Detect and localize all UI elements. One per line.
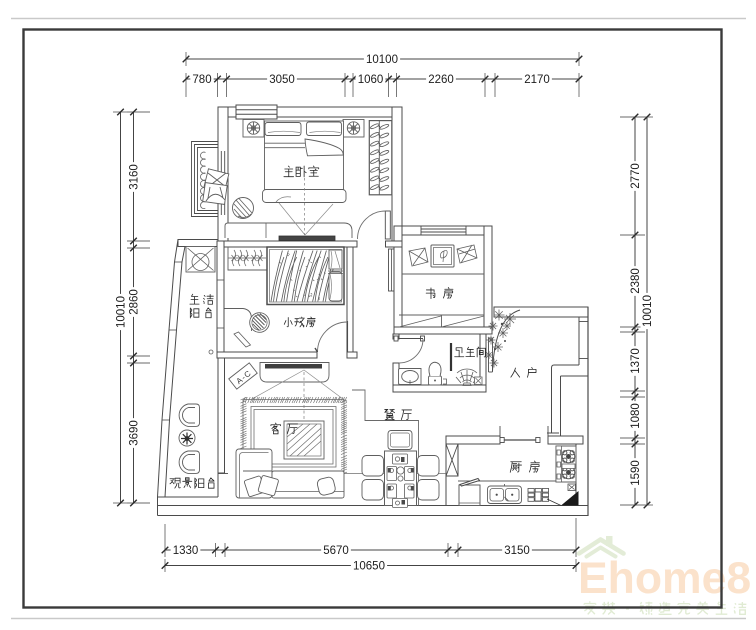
svg-text:3050: 3050	[269, 74, 295, 86]
svg-text:1080: 1080	[630, 403, 642, 429]
svg-text:1370: 1370	[630, 348, 642, 374]
svg-text:3690: 3690	[129, 420, 141, 446]
svg-text:780: 780	[192, 74, 211, 86]
svg-text:1330: 1330	[173, 545, 199, 557]
svg-text:5670: 5670	[323, 545, 349, 557]
svg-text:1590: 1590	[630, 460, 642, 486]
svg-text:2380: 2380	[630, 268, 642, 294]
svg-text:Ehome8: Ehome8	[578, 554, 751, 603]
svg-text:10010: 10010	[642, 295, 654, 327]
svg-text:2770: 2770	[630, 163, 642, 189]
svg-text:2170: 2170	[524, 74, 550, 86]
svg-text:10100: 10100	[366, 54, 398, 66]
svg-text:10650: 10650	[353, 561, 385, 573]
svg-text:3150: 3150	[504, 545, 530, 557]
svg-text:10010: 10010	[116, 296, 128, 328]
svg-text:3160: 3160	[129, 164, 141, 190]
svg-text:1060: 1060	[358, 74, 384, 86]
svg-text:2860: 2860	[129, 289, 141, 315]
svg-text:2260: 2260	[428, 74, 454, 86]
